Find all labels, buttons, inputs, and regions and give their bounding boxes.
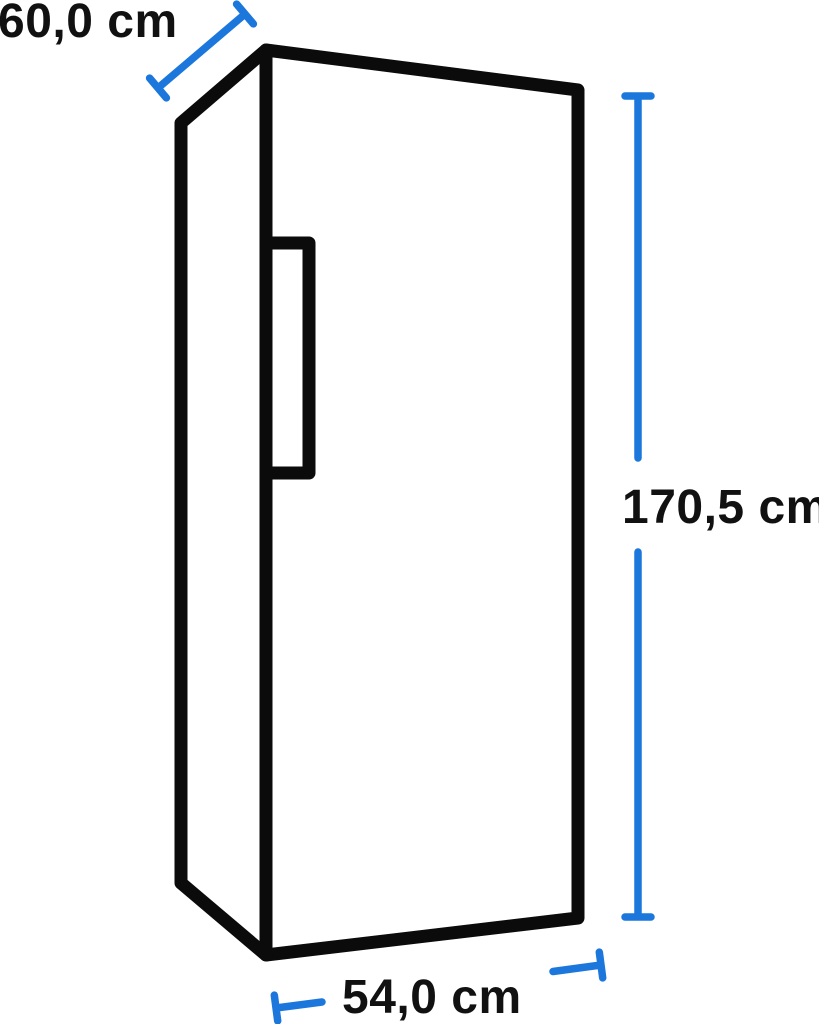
- dimension-labels: 60,0 cm 170,5 cm 54,0 cm: [0, 0, 819, 1024]
- door-handle: [267, 243, 309, 473]
- dimension-diagram: 60,0 cm 170,5 cm 54,0 cm: [0, 0, 819, 1024]
- diagram-canvas: 60,0 cm 170,5 cm 54,0 cm: [0, 0, 819, 1024]
- depth-label: 60,0 cm: [0, 0, 178, 48]
- fridge-side-face: [181, 50, 266, 955]
- fridge-outline: [181, 50, 578, 955]
- height-label: 170,5 cm: [622, 481, 819, 534]
- width-label: 54,0 cm: [342, 971, 522, 1024]
- fridge-front-face: [266, 50, 578, 955]
